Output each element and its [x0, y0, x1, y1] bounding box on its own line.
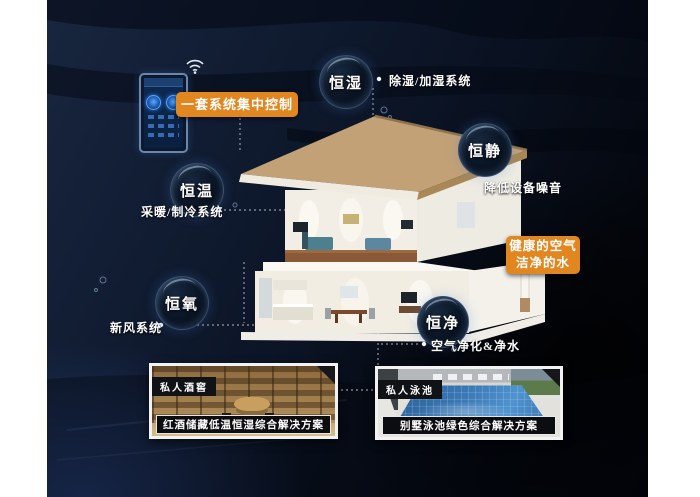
central-control-label: 一套系统集中控制	[176, 92, 298, 117]
wine-table	[234, 397, 270, 411]
highlight-line2: 洁净的水	[506, 255, 580, 272]
photo-corner-ribbon	[542, 369, 560, 387]
phone-screen-row	[148, 133, 179, 137]
photo-corner-ribbon	[317, 366, 335, 384]
stage-background: 一套系统集中控制 健康的空气 洁净的水 恒湿 恒静 恒温 恒氧 恒净 除湿/加湿…	[47, 0, 648, 497]
pool-caption: 别墅泳池绿色综合解决方案	[382, 416, 556, 435]
healthy-air-water-label: 健康的空气 洁净的水	[506, 236, 580, 274]
note-heating-cooling: 采暖/制冷系统	[141, 203, 223, 220]
phone-dial-icon	[146, 95, 161, 110]
pool-lounge-chairs	[433, 374, 509, 380]
wine-cellar-photo: 私人酒窖 红酒储藏低温恒湿综合解决方案	[149, 363, 338, 439]
note-dehumidify-system: 除湿/加湿系统	[389, 72, 471, 89]
bubble-constant-oxygen: 恒氧	[155, 276, 209, 330]
phone-screen-row	[148, 115, 179, 119]
wine-cellar-caption: 红酒储藏低温恒湿综合解决方案	[156, 415, 331, 434]
wine-cellar-tag: 私人酒窖	[152, 377, 216, 396]
highlight-line1: 健康的空气	[506, 238, 580, 255]
phone-screen-row	[148, 124, 179, 128]
note-noise-reduction: 降低设备噪音	[484, 179, 562, 196]
bubble-constant-humidity: 恒湿	[319, 55, 373, 109]
note-air-water-purification: 空气净化&净水	[431, 337, 520, 354]
pool-photo: 私人泳池 别墅泳池绿色综合解决方案	[375, 366, 563, 440]
pool-tag: 私人泳池	[378, 380, 442, 399]
wifi-icon	[186, 58, 204, 74]
phone-screen-header	[144, 78, 183, 87]
infographic-page: 一套系统集中控制 健康的空气 洁净的水 恒湿 恒静 恒温 恒氧 恒净 除湿/加湿…	[0, 0, 700, 497]
bubble-constant-quiet: 恒静	[458, 123, 512, 177]
note-fresh-air-system: 新风系统	[110, 319, 162, 336]
